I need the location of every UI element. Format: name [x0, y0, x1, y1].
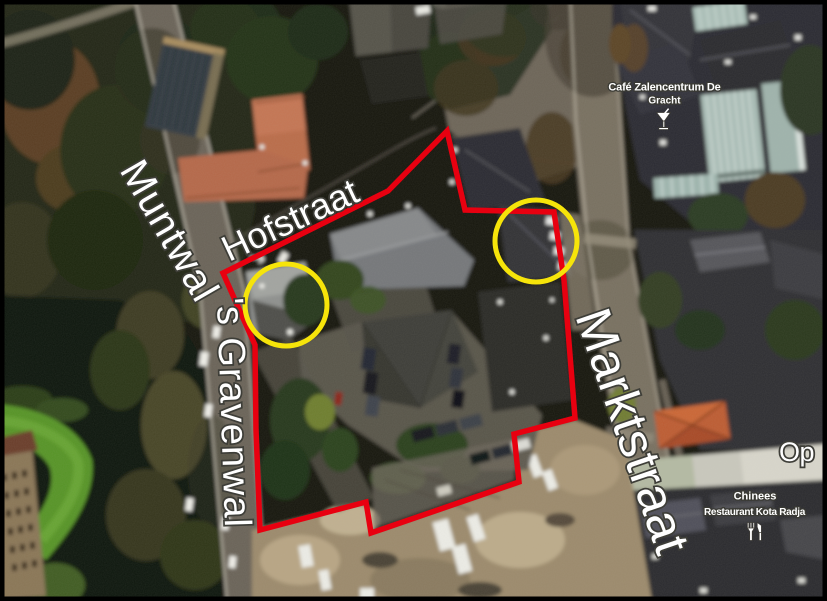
svg-text:'s Gravenwal: 's Gravenwal	[208, 297, 258, 529]
svg-text:Op: Op	[779, 437, 814, 467]
svg-text:Chinees: Chinees	[734, 491, 777, 503]
svg-text:Gracht: Gracht	[648, 96, 681, 107]
svg-text:Restaurant Kota Radja: Restaurant Kota Radja	[704, 507, 806, 518]
svg-text:Café Zalencentrum De: Café Zalencentrum De	[608, 82, 720, 94]
